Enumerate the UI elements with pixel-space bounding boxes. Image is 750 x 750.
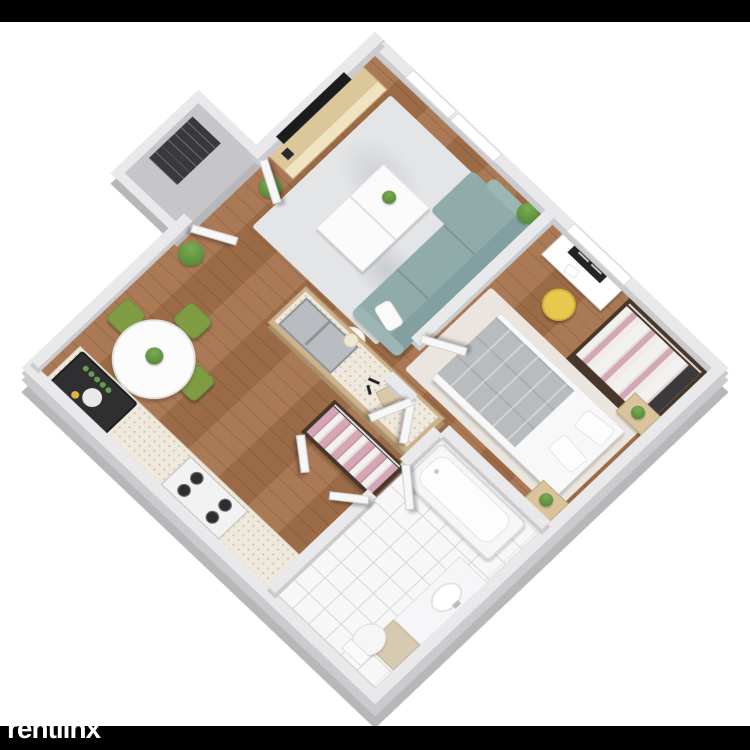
apartment-outline xyxy=(21,32,728,704)
watermark-text: rentlinx xyxy=(7,713,100,744)
top-letterbox-bar xyxy=(0,0,750,22)
floor-plan-image: rentlinx® xyxy=(0,0,750,750)
watermark-registered-mark: ® xyxy=(100,712,106,723)
isometric-scene xyxy=(21,32,728,704)
rentlinx-watermark: rentlinx® xyxy=(7,713,107,743)
entry-shelf-unit xyxy=(149,116,221,185)
bottom-letterbox-bar xyxy=(0,726,750,750)
